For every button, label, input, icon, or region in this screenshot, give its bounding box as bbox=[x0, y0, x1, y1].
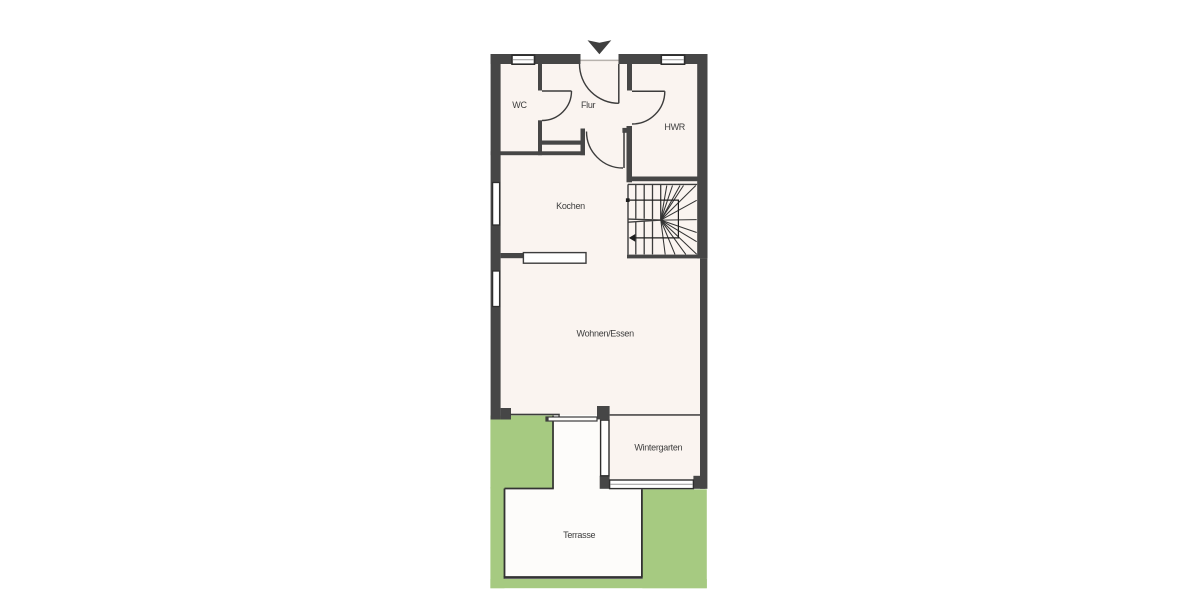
svg-text:Kochen: Kochen bbox=[556, 201, 585, 211]
svg-text:Flur: Flur bbox=[581, 100, 596, 110]
svg-text:HWR: HWR bbox=[664, 122, 685, 132]
svg-text:Terrasse: Terrasse bbox=[563, 530, 595, 540]
svg-text:Wohnen/Essen: Wohnen/Essen bbox=[577, 329, 635, 339]
svg-text:Wintergarten: Wintergarten bbox=[634, 443, 682, 453]
svg-text:WC: WC bbox=[512, 100, 527, 110]
